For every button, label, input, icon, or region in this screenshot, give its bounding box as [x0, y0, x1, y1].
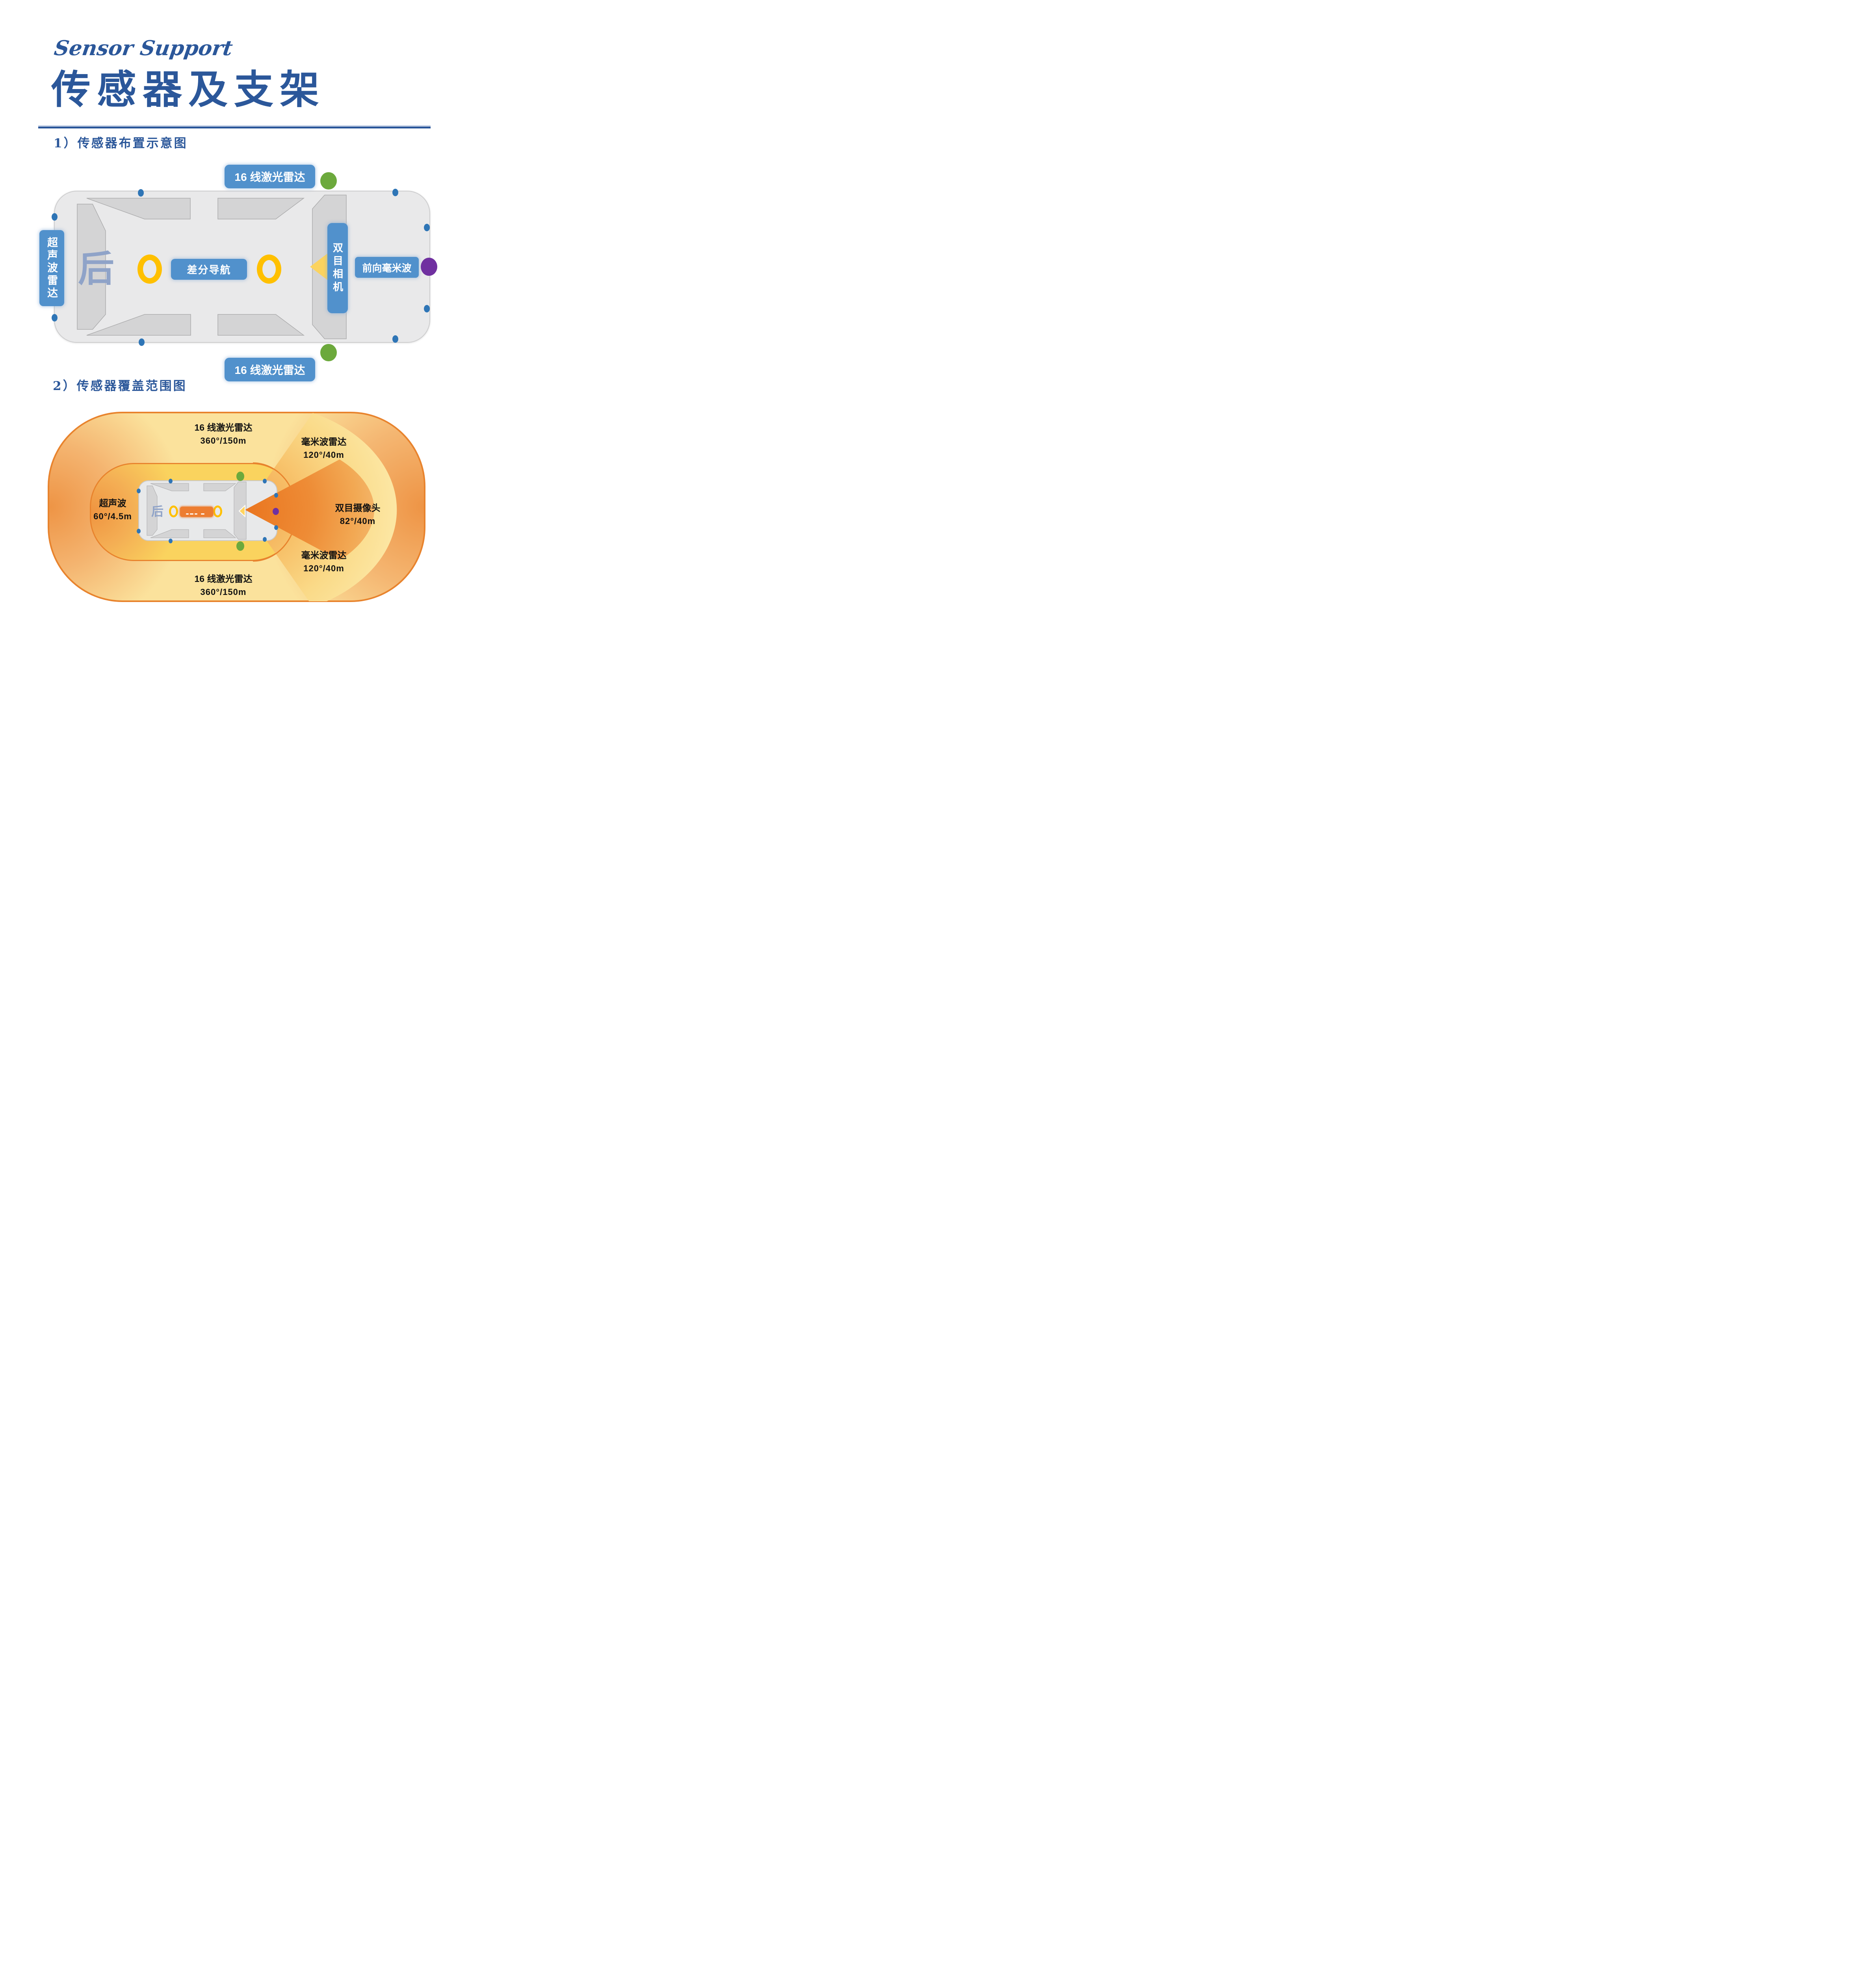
ultrasonic-dot-left-lower [52, 314, 58, 322]
window-rear-left [87, 198, 190, 219]
mini-mmwave-dot-purple [273, 508, 279, 515]
front-mmwave-label: 前向毫米波 [355, 257, 419, 278]
gnss-antenna-ring-rear [137, 255, 162, 284]
lidar-dot-green-top [320, 172, 337, 190]
mini-dot-left-lower [137, 529, 141, 533]
coverage-label-mmwave-bottom: 毫米波雷达 120°/40m [277, 548, 371, 575]
gnss-antenna-ring-front [257, 255, 281, 284]
coverage-label-name: 双目摄像头 [310, 501, 405, 515]
diff-nav-label: 差分导航 [171, 259, 247, 280]
mini-dot-right-upper [274, 493, 278, 498]
ultrasonic-dot-top-right [392, 189, 398, 196]
ultrasonic-dot-bottom-left [139, 338, 145, 346]
ultrasonic-dot-left-upper [52, 213, 58, 221]
mini-dot-bottom-right [263, 537, 267, 542]
coverage-label-binocular: 双目摄像头 82°/40m [310, 501, 405, 528]
divider-line [38, 126, 431, 128]
coverage-label-name: 16 线激光雷达 [176, 572, 271, 585]
coverage-label-mmwave-top: 毫米波雷达 120°/40m [277, 435, 371, 462]
lidar-top-label: 16 线激光雷达 [225, 165, 315, 188]
coverage-label-ultrasonic: 超声波 60°/4.5m [65, 496, 160, 523]
mini-lidar-dot-green-bottom [236, 541, 244, 551]
coverage-label-spec: 120°/40m [277, 448, 371, 462]
coverage-label-name: 超声波 [65, 496, 160, 510]
ultrasonic-dot-right-lower [424, 305, 430, 312]
mini-dot-top-right [263, 479, 267, 483]
coverage-label-spec: 360°/150m [176, 585, 271, 599]
coverage-label-spec: 360°/150m [176, 434, 271, 448]
coverage-label-spec: 60°/4.5m [65, 510, 160, 523]
mini-dot-left-upper [137, 489, 141, 493]
camera-fov-triangle [310, 252, 329, 281]
section-1-heading: 1）传感器布置示意图 [54, 133, 188, 151]
coverage-label-name: 16 线激光雷达 [176, 421, 271, 434]
coverage-label-name: 毫米波雷达 [277, 435, 371, 448]
mini-camera-fov-triangle [239, 506, 245, 517]
lidar-dot-green-bottom [320, 344, 337, 361]
lidar-bottom-label: 16 线激光雷达 [225, 358, 315, 381]
ultrasonic-dot-right-upper [424, 224, 430, 231]
coverage-label-lidar-bottom: 16 线激光雷达 360°/150m [176, 572, 271, 599]
rear-direction-character: 后 [78, 249, 114, 288]
mmwave-dot-purple [421, 258, 437, 276]
ultrasonic-dot-bottom-right [392, 335, 398, 343]
brand-script-text: Sensor Support [53, 36, 234, 60]
section-2-heading: 2）传感器覆盖范围图 [53, 376, 187, 394]
mini-dot-right-lower [274, 525, 278, 530]
mini-lidar-dot-green-top [236, 472, 244, 481]
coverage-label-spec: 82°/40m [310, 515, 405, 528]
mini-dot-top-left [169, 479, 173, 483]
mini-dot-bottom-left [169, 539, 173, 543]
window-front-right [218, 314, 304, 335]
page-title: 传感器及支架 [51, 58, 351, 115]
ultrasonic-dot-top-left [138, 189, 144, 197]
coverage-label-lidar-top: 16 线激光雷达 360°/150m [176, 421, 271, 448]
divider-line-light [38, 125, 431, 126]
coverage-label-name: 毫米波雷达 [277, 548, 371, 562]
ultrasonic-label: 超声波雷达 [39, 230, 64, 306]
stereo-camera-label: 双目相机 [327, 223, 348, 313]
coverage-label-spec: 120°/40m [277, 562, 371, 575]
window-front-left [218, 198, 304, 219]
